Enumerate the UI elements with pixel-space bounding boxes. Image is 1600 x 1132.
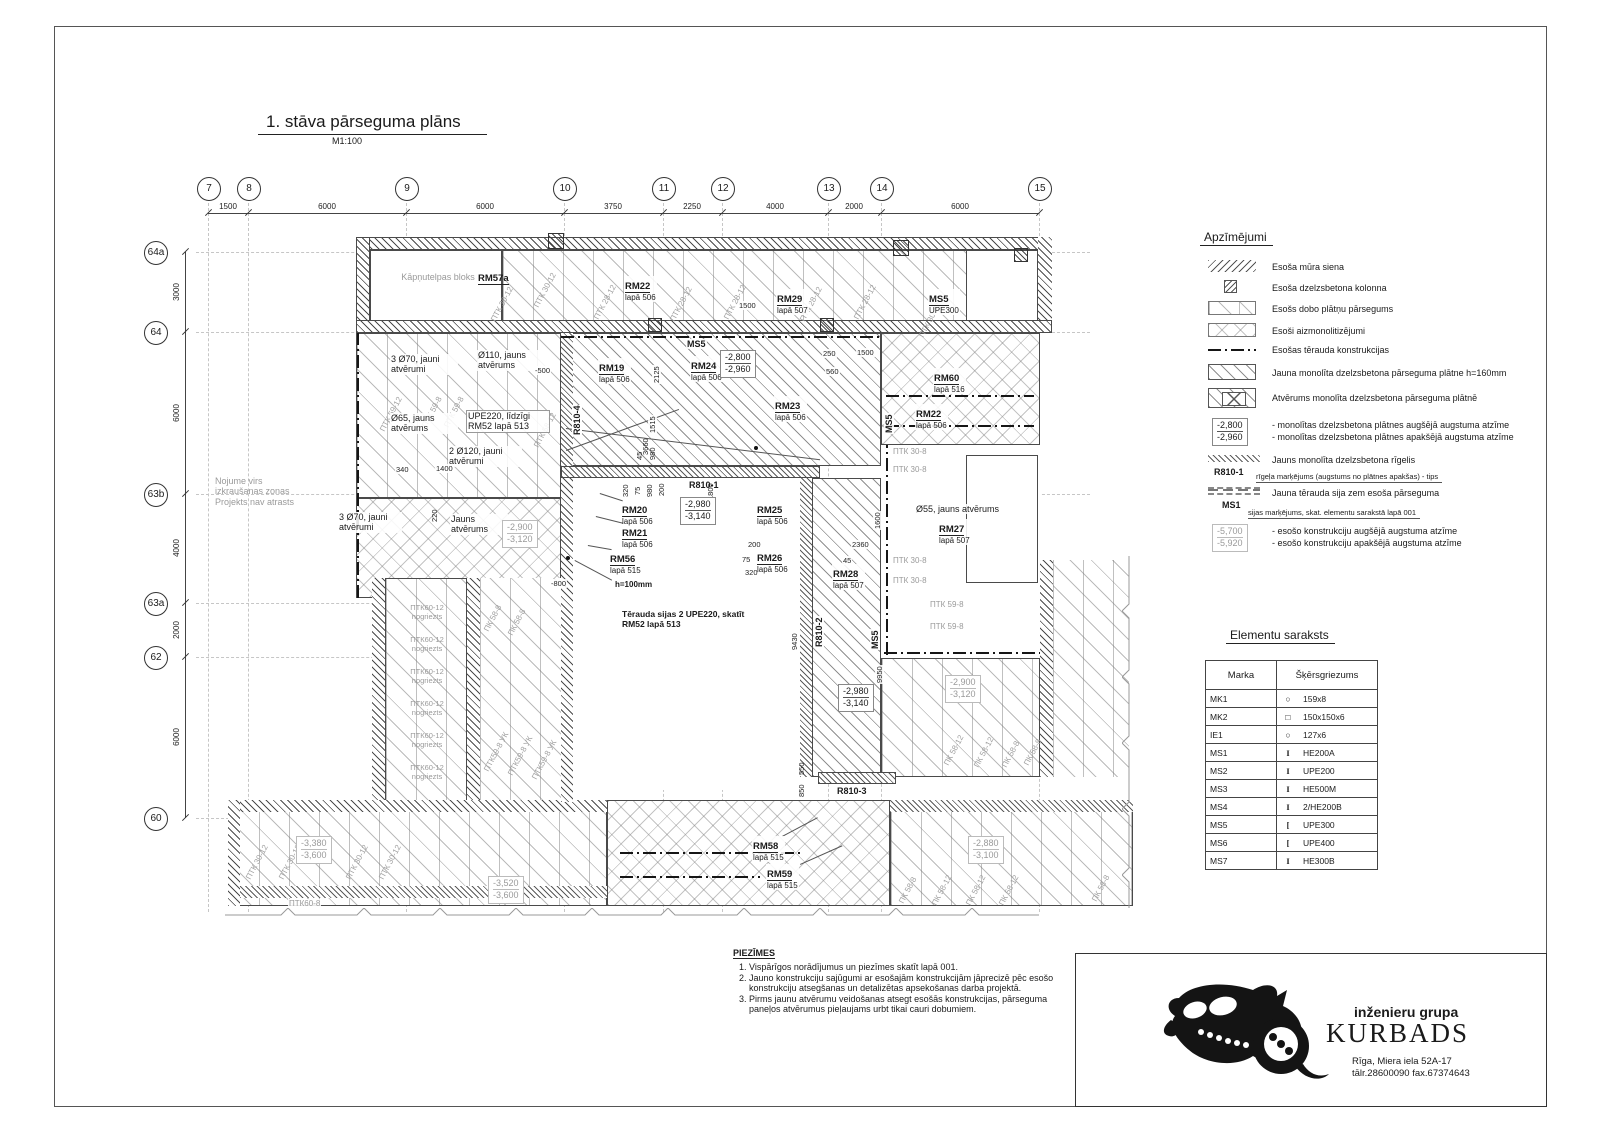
note-item: Pirms jaunu atvērumu veidošanas atsegt e…	[749, 994, 1069, 1014]
steel-beam	[886, 395, 1034, 397]
tower-wall-right	[467, 578, 480, 802]
dim-250: 250	[822, 349, 837, 358]
dim-left: 6000	[172, 396, 181, 430]
note-hole55: Ø55, jauns atvērums	[915, 504, 1000, 514]
elevation-box: -3,520-3,600	[488, 876, 524, 904]
section-icon: I	[1277, 852, 1300, 870]
legend-item: Jauns monolīta dzelzsbetona rīgelis	[1272, 455, 1415, 465]
dim-left: 4000	[172, 531, 181, 565]
note-holes70: 3 Ø70, jauni atvērumi	[390, 354, 458, 375]
dim-left: 6000	[172, 720, 181, 754]
rigelis-R810-2	[800, 478, 812, 777]
legend-item: Esoša mūra siena	[1272, 262, 1344, 272]
grid-bubble-row: 64a	[144, 241, 168, 265]
elevation-box: -2,900-3,120	[502, 520, 538, 548]
panel-label-2line: ПТК60-12nogriezts	[396, 732, 458, 749]
table-row: MS7IHE300B	[1206, 852, 1378, 870]
mark-R810-4: R810-4	[572, 405, 582, 435]
dim-2360: 2360	[851, 540, 870, 549]
wall-bl-top	[228, 800, 607, 812]
col-header-marka: Marka	[1206, 661, 1277, 690]
grid-bubble-row: 62	[144, 646, 168, 670]
wall-top	[356, 237, 1050, 250]
dim-2125: 2125	[652, 365, 661, 384]
dimension-line-left	[185, 252, 186, 818]
dim-45: 45	[842, 556, 852, 565]
dim-320: 320	[745, 568, 758, 577]
panel-label: ПТК 30-8	[893, 447, 927, 456]
steel-line	[886, 445, 888, 655]
grid-bubble-col: 10	[553, 177, 577, 201]
dim-560: 560	[825, 367, 840, 376]
break-line-right	[1122, 556, 1136, 908]
panel-label-2line: ПТК60-12nogriezts	[396, 604, 458, 621]
dim-220: 220	[430, 509, 439, 522]
grid-line-col	[208, 198, 209, 912]
note-new-opening: Jauns atvērums	[450, 514, 508, 535]
wall-grid10	[561, 478, 573, 802]
steel-beam-MS5-top	[561, 336, 881, 338]
legend-swatch-steel	[1208, 349, 1256, 351]
slab-right-ext	[1053, 560, 1129, 777]
mark-MS5-UPE300: MS5UPE300	[928, 289, 960, 315]
dim-top: 6000	[310, 202, 344, 211]
grid-bubble-row: 63a	[144, 592, 168, 616]
dim-1500: 1500	[738, 301, 757, 310]
elevation-box: -3,380-3,600	[296, 836, 332, 864]
legend-item: - monolītas dzelzsbetona plātnes augšējā…	[1272, 420, 1509, 430]
legend-item: Esoša dzelzsbetona kolonna	[1272, 283, 1387, 293]
panel-label-2line: ПТК60-12nogriezts	[396, 764, 458, 781]
dim-340: 340	[395, 465, 410, 474]
kurbads-horse-logo	[1161, 980, 1331, 1084]
steel-beam	[886, 425, 1034, 427]
panel-label: ПТК 30-8	[893, 576, 927, 585]
mark-RM28: RM28lapā 507	[832, 564, 865, 590]
table-row: MS4I2/HE200B	[1206, 798, 1378, 816]
grid-bubble-col: 15	[1028, 177, 1052, 201]
right-middle-room	[966, 455, 1038, 583]
title-block: inženieru grupa KURBADS Rīga, Miera iela…	[1075, 953, 1547, 1107]
drawing-scale: M1:100	[332, 136, 362, 146]
grid-bubble-row: 63b	[144, 483, 168, 507]
mark-MS5: MS5	[686, 339, 707, 349]
elements-title: Elementu saraksts	[1226, 628, 1335, 644]
mark-RM58: RM58lapā 515	[752, 836, 785, 862]
legend-item: Jauna monolīta dzelzsbetona pārseguma pl…	[1272, 368, 1506, 378]
column	[648, 318, 662, 332]
mark-RM27: RM27lapā 507	[938, 519, 971, 545]
elevation-box: -2,880-3,100	[968, 836, 1004, 864]
wall-left-top	[356, 237, 370, 333]
legend-elevation-old: -5,700-5,920	[1212, 524, 1248, 552]
legend-item: Esošas tērauda konstrukcijas	[1272, 345, 1389, 355]
legend-item: - esošo konstrukciju augšējā augstuma at…	[1272, 526, 1457, 536]
legend-item: Jauna tērauda sija zem esoša pārseguma	[1272, 488, 1439, 498]
note-item: Jauno konstrukciju sajūgumi ar esošajām …	[749, 973, 1069, 993]
section-icon: [	[1277, 834, 1300, 852]
rigelis-R810-1	[561, 466, 820, 478]
table-row: MK1○159x8	[1206, 690, 1378, 708]
dim-top: 2000	[837, 202, 871, 211]
legend-swatch-rigelis	[1208, 455, 1260, 462]
rigelis-bl-bottom	[240, 886, 607, 898]
dim-1400: 1400	[435, 464, 454, 473]
rigelis-R810-3	[818, 772, 896, 784]
column	[893, 240, 909, 256]
legend-title: Apzīmējumi	[1200, 230, 1273, 246]
note-holes120: 2 Ø120, jauni atvērumi	[448, 446, 522, 467]
mark-RM21: RM21lapā 506	[622, 523, 653, 549]
mark-RM22-b: RM22lapā 506	[915, 404, 948, 430]
elevation-box: -2,800-2,960	[720, 350, 756, 378]
section-icon: [	[1277, 816, 1300, 834]
grid-bubble-col: 12	[711, 177, 735, 201]
page-title: 1. stāva pārseguma plāns	[258, 112, 487, 135]
dim-3660: 3660	[641, 438, 650, 455]
dim-75: 75	[633, 487, 642, 495]
steel-beam	[884, 652, 1040, 654]
dim-top: 1500	[211, 202, 245, 211]
dim-minus800: -800	[550, 579, 567, 588]
break-line-bottom	[225, 908, 1137, 922]
dim-200: 200	[657, 483, 666, 496]
dim-1500: 1500	[856, 348, 875, 357]
dim-850: 850	[797, 784, 806, 797]
mark-RM57a: RM57a	[478, 268, 509, 286]
dim-top: 4000	[758, 202, 792, 211]
dim-980: 980	[645, 484, 654, 497]
mark-RM24: RM24lapā 506	[690, 356, 723, 382]
legend-swatch-wall	[1208, 260, 1256, 272]
tower-wall-left	[372, 578, 385, 802]
note-holes70-b: 3 Ø70, jauni atvērumi	[338, 512, 402, 533]
dim-top: 6000	[468, 202, 502, 211]
panel-label: ПТК 59-8	[930, 622, 964, 631]
elevation-box: -2,980-3,140	[838, 684, 874, 712]
legend-swatch-beam	[1208, 487, 1260, 495]
section-icon: I	[1277, 798, 1300, 816]
mark-R810-2: R810-2	[814, 616, 824, 648]
column	[820, 318, 834, 332]
dim-320: 320	[621, 484, 630, 497]
legend-swatch-hollow-slab	[1208, 301, 1256, 315]
mark-RM29: RM29lapā 507	[776, 289, 809, 315]
legend-swatch-new-slab	[1208, 364, 1256, 380]
section-icon: ○	[1277, 690, 1300, 708]
notes-block: PIEZĪMES Vispārīgos norādījumus un piezī…	[733, 948, 1069, 1015]
canopy-note: Nojume virsizkraušanas zonasProjekts nav…	[215, 476, 294, 507]
wall-bl-left	[228, 800, 240, 906]
mark-RM22: RM22lapā 506	[624, 276, 657, 302]
note-steel-beams: Tērauda sijas 2 UPE220, skatīt RM52 lapā…	[622, 610, 752, 630]
table-row: MS1IHE200A	[1206, 744, 1378, 762]
panel-label-2line: ПТК60-12nogriezts	[396, 700, 458, 717]
note-h100: h=100mm	[615, 580, 652, 589]
panel-label: ПТК 59-8	[930, 600, 964, 609]
grid-bubble-col: 8	[237, 177, 261, 201]
dim-9950: 9950	[875, 665, 884, 684]
panel-label: ПТК 30-8	[893, 465, 927, 474]
dim-1515: 1515	[648, 415, 657, 434]
notes-title: PIEZĪMES	[733, 948, 775, 959]
dimension-line-top	[208, 213, 1039, 214]
grid-bubble-row: 64	[144, 321, 168, 345]
rigelis-br-top	[890, 800, 1133, 812]
company-address: Rīga, Miera iela 52A-17	[1352, 1056, 1452, 1067]
dim-top: 2250	[675, 202, 709, 211]
dim-left: 2000	[172, 613, 181, 647]
dim-top: 3750	[596, 202, 630, 211]
table-row: MS2IUPE200	[1206, 762, 1378, 780]
stair-room-label: Kāpņutelpas bloks	[392, 272, 484, 282]
legend-item: Esoši aizmonolitizējumi	[1272, 326, 1365, 336]
steel-line-left-edge	[357, 333, 359, 598]
dim-left: 3000	[172, 275, 181, 309]
dim-550: 550	[797, 762, 806, 775]
legend-item: - monolītas dzelzsbetona plātnes apakšēj…	[1272, 432, 1514, 442]
table-row: MK2□150x150x6	[1206, 708, 1378, 726]
legend-swatch-infill	[1208, 323, 1256, 337]
grid-bubble-col: 7	[197, 177, 221, 201]
elevation-box: -2,980-3,140	[680, 497, 716, 525]
legend-swatch-opening	[1208, 388, 1256, 408]
dim-200: 200	[748, 540, 761, 549]
legend-item: - esošo konstrukciju apakšējā augstuma a…	[1272, 538, 1462, 548]
column	[548, 233, 564, 249]
dim-minus500: -500	[534, 366, 551, 375]
grid-bubble-col: 9	[395, 177, 419, 201]
dim-75: 75	[742, 555, 750, 564]
legend-rigelis-mark: R810-1	[1214, 467, 1244, 477]
table-row: MS3IHE500M	[1206, 780, 1378, 798]
section-icon: □	[1277, 708, 1300, 726]
dim-9430: 9430	[790, 633, 799, 650]
panel-label: ПТК60-8	[288, 899, 321, 908]
wall-right-top	[1038, 237, 1052, 333]
legend-rigelis-sub: rīgeļa marķējums (augstums no plātnes ap…	[1256, 472, 1442, 483]
note-upe220: UPE220, līdzīgi RM52 lapā 513	[466, 410, 550, 433]
company-phone: tālr.28600090 fax.67374643	[1352, 1068, 1470, 1079]
mark-RM56: RM56lapā 515	[610, 549, 641, 575]
legend-beam-sub: sijas marķējums, skat. elementu sarakstā…	[1248, 508, 1420, 519]
dim-1600: 1600	[873, 511, 882, 530]
legend-beam-mark: MS1	[1222, 500, 1241, 510]
mark-RM60: RM60lapā 516	[933, 368, 966, 394]
steel-beam	[620, 876, 760, 878]
grid-bubble-col: 11	[652, 177, 676, 201]
section-icon: ○	[1277, 726, 1300, 744]
panel-label-2line: ПТК60-12nogriezts	[396, 636, 458, 653]
panel-label-2line: ПТК60-12nogriezts	[396, 668, 458, 685]
mark-MS5-vert: MS5	[870, 629, 880, 650]
grid-bubble-col: 13	[817, 177, 841, 201]
legend-item: Esošs dobo plātņu pārsegums	[1272, 304, 1393, 314]
elements-table: Marka Šķērsgriezums MK1○159x8 MK2□150x15…	[1205, 660, 1378, 870]
logo-company-text: KURBADS	[1326, 1018, 1469, 1049]
mark-RM26: RM26lapā 506	[757, 548, 788, 574]
column	[1014, 248, 1028, 262]
mark-MS5-vert: MS5	[884, 413, 894, 434]
elevation-box: -2,900-3,120	[945, 675, 981, 703]
section-icon: I	[1277, 744, 1300, 762]
grid-bubble-row: 60	[144, 807, 168, 831]
stair-room	[370, 250, 502, 322]
drawing-sheet: 1. stāva pārseguma plāns M1:100 7 8 9 10…	[0, 0, 1600, 1132]
mark-R810-3: R810-3	[836, 786, 868, 796]
mark-RM59: RM59lapā 515	[766, 864, 799, 890]
wall-row64	[356, 320, 1052, 333]
panel-label: ПТК 30-8	[893, 556, 927, 565]
legend-elevation-new: -2,800-2,960	[1212, 418, 1248, 446]
legend-swatch-column	[1224, 280, 1237, 293]
table-row: MS6[UPE400	[1206, 834, 1378, 852]
mark-RM25: RM25lapā 506	[757, 500, 788, 526]
section-icon: I	[1277, 780, 1300, 798]
mark-RM23: RM23lapā 506	[774, 396, 807, 422]
note-item: Vispārīgos norādījumus un piezīmes skatī…	[749, 962, 1069, 972]
legend-item: Atvērums monolīta dzelzsbetona pārseguma…	[1272, 393, 1477, 403]
note-hole65: Ø65, jauns atvērums	[390, 413, 458, 434]
table-row: IE1○127x6	[1206, 726, 1378, 744]
table-row: MS5[UPE300	[1206, 816, 1378, 834]
mark-RM19: RM19lapā 506	[598, 358, 631, 384]
col-header-section: Šķērsgriezums	[1277, 661, 1378, 690]
grid-bubble-col: 14	[870, 177, 894, 201]
section-icon: I	[1277, 762, 1300, 780]
dim-top: 6000	[943, 202, 977, 211]
